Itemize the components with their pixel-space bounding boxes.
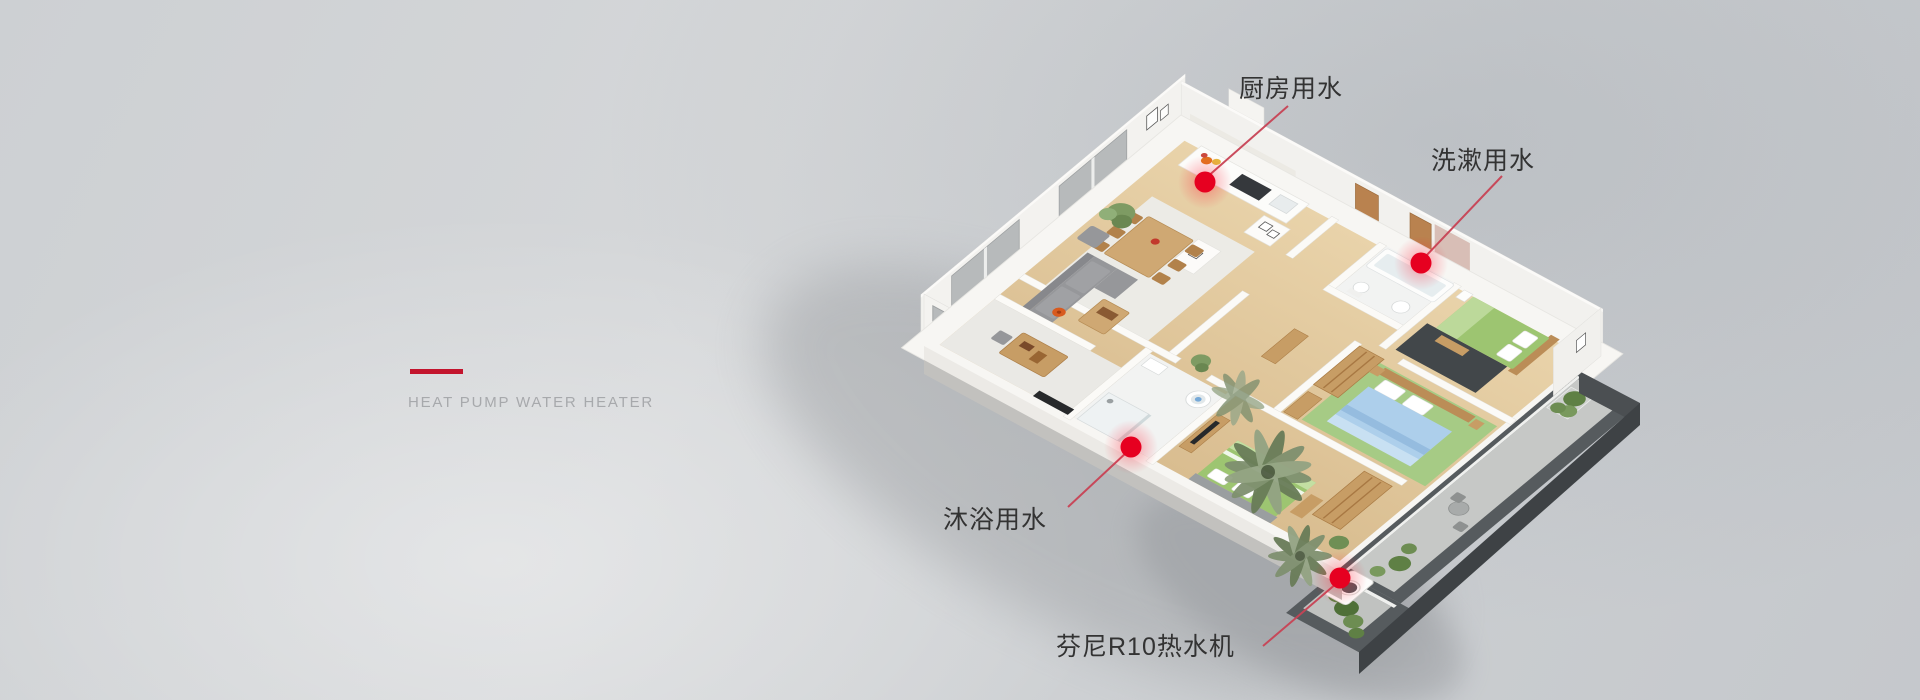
shower-water-marker	[1104, 420, 1158, 474]
shower-water-label: 沐浴用水	[943, 500, 1047, 536]
kitchen-water-marker	[1178, 155, 1232, 209]
washing-water-label: 洗漱用水	[1431, 141, 1535, 177]
kitchen-water-label: 厨房用水	[1239, 69, 1343, 105]
heater-marker	[1313, 551, 1367, 605]
heater-product-label: 芬尼R10热水机	[1056, 627, 1235, 663]
floorplan-scene	[0, 0, 1920, 700]
washing-water-marker	[1394, 236, 1448, 290]
hero-banner: HEAT PUMP WATER HEATER	[0, 0, 1920, 700]
